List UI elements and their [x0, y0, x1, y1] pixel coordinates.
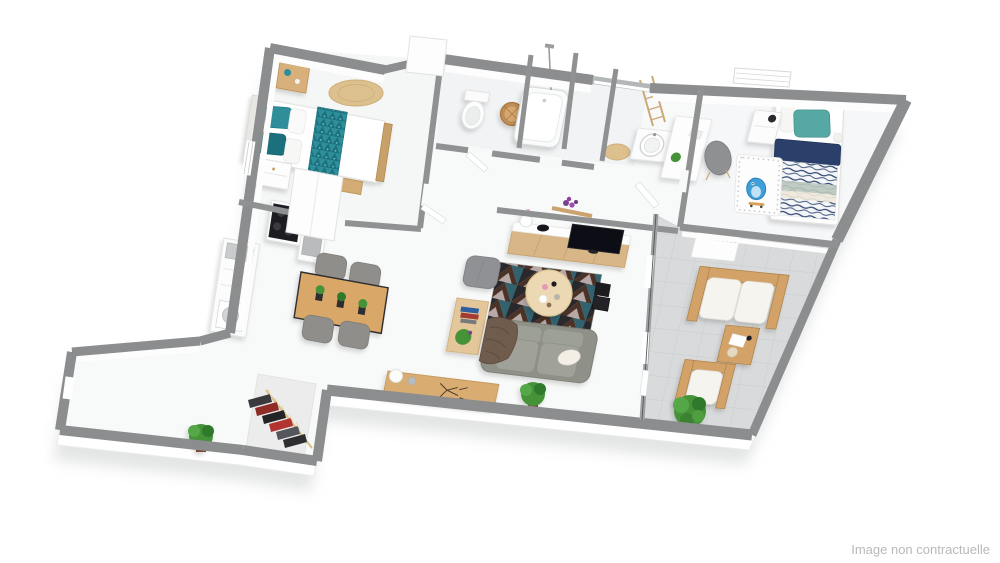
floorplan-page: Image non contractuelle	[0, 0, 1000, 563]
teddy-bear	[833, 132, 842, 142]
duct-shaft-block	[406, 36, 447, 76]
watermark-text: Image non contractuelle	[851, 542, 990, 557]
open-closet	[246, 374, 316, 458]
jute-rug-hall	[604, 144, 630, 160]
pouf	[462, 255, 502, 289]
coffee-table	[526, 270, 572, 316]
kids-play-rug	[734, 154, 783, 216]
floorplan-3d-render: Image non contractuelle	[0, 0, 1000, 563]
jute-rug-main	[329, 80, 383, 106]
